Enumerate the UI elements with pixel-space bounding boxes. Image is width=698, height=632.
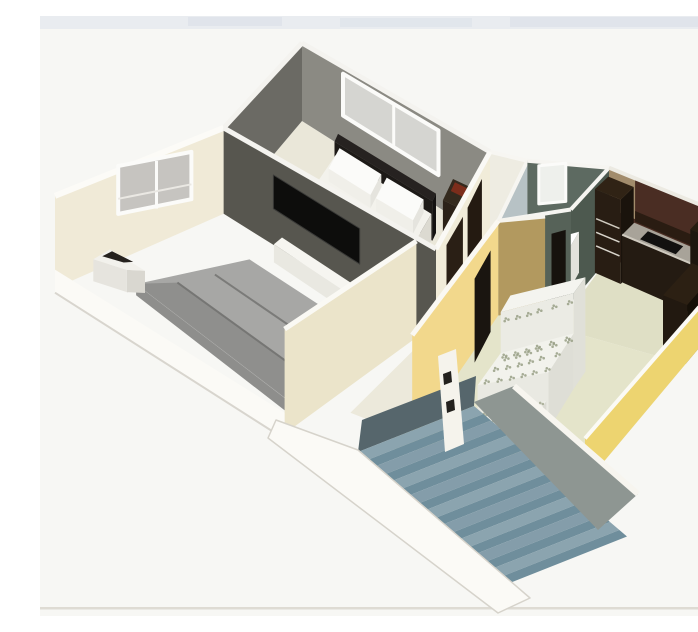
pattern-dot (505, 368, 508, 371)
pattern-dot (532, 360, 535, 363)
small-object-se (127, 270, 145, 293)
pattern-dot (544, 370, 547, 373)
sofa-back-se (574, 277, 586, 389)
pattern-dot (571, 340, 574, 343)
pattern-dot (527, 312, 530, 315)
pattern-dot (553, 342, 556, 345)
pattern-dot (519, 316, 522, 319)
pattern-dot (539, 358, 542, 361)
pattern-dot (493, 369, 496, 372)
pattern-dot (542, 403, 545, 406)
pattern-dot (500, 379, 503, 382)
pattern-dot (538, 346, 541, 349)
pattern-dot (528, 362, 531, 365)
pattern-dot (524, 351, 527, 354)
floor-plan-scene (40, 16, 698, 616)
pattern-dot (487, 380, 490, 383)
pattern-dot (555, 355, 558, 358)
pattern-dot (537, 308, 540, 311)
pattern-dot (503, 359, 506, 362)
pattern-dot (551, 307, 554, 310)
pattern-dot (542, 357, 545, 360)
pattern-dot (552, 304, 555, 307)
pattern-dot (524, 374, 527, 377)
scan-top-blob-3 (510, 17, 698, 27)
pattern-dot (566, 337, 569, 340)
pattern-dot (546, 367, 549, 370)
bathroom-window (539, 163, 566, 204)
pattern-dot (525, 348, 528, 351)
pattern-dot (507, 357, 510, 360)
pattern-dot (568, 300, 571, 303)
pattern-dot (530, 313, 533, 316)
pattern-dot (540, 348, 543, 351)
pattern-dot (503, 320, 506, 323)
pattern-dot (502, 354, 505, 357)
pattern-dot (494, 367, 497, 370)
pattern-dot (498, 378, 501, 381)
bed-headboard-se (432, 194, 436, 241)
pattern-dot (532, 373, 535, 376)
pattern-dot (522, 373, 525, 376)
pattern-dot (567, 341, 570, 344)
pattern-dot (535, 371, 538, 374)
scan-top-blob-1 (188, 17, 282, 26)
pattern-dot (507, 318, 510, 321)
pattern-dot (568, 338, 571, 341)
pattern-dot (535, 347, 538, 350)
pattern-dot (520, 363, 523, 366)
pattern-dot (536, 350, 539, 353)
scan-top-blob-2 (340, 18, 472, 27)
pattern-dot (549, 343, 552, 346)
pattern-dot (485, 379, 488, 382)
pattern-dot (551, 345, 554, 348)
pattern-dot (515, 356, 518, 359)
pattern-dot (514, 351, 517, 354)
pattern-dot (509, 366, 512, 369)
pattern-dot (515, 318, 518, 321)
pattern-dot (530, 352, 533, 355)
pattern-dot (536, 311, 539, 314)
pattern-dot (519, 355, 522, 358)
pattern-dot (516, 315, 519, 318)
pattern-dot (517, 365, 520, 368)
pattern-dot (505, 317, 508, 320)
pattern-dot (526, 353, 529, 356)
pattern-dot (512, 377, 515, 380)
pattern-dot (564, 339, 567, 342)
pattern-dot (505, 355, 508, 358)
pattern-dot (484, 382, 487, 385)
pattern-dot (520, 376, 523, 379)
pattern-dot (496, 380, 499, 383)
pattern-dot (536, 345, 539, 348)
pattern-dot (533, 370, 536, 373)
pattern-dot (558, 353, 561, 356)
pattern-dot (529, 359, 532, 362)
pattern-dot (501, 356, 504, 359)
pattern-dot (518, 362, 521, 365)
pattern-dot (556, 352, 559, 355)
pattern-dot (497, 368, 500, 371)
pattern-dot (555, 306, 558, 309)
pattern-dot (517, 352, 520, 355)
pattern-dot (571, 301, 574, 304)
floor-plan-3d-render (40, 16, 698, 616)
scan-bottom-line (40, 607, 698, 610)
pattern-dot (539, 402, 542, 405)
pattern-dot (567, 303, 570, 306)
pattern-dot (513, 354, 516, 357)
pattern-dot (509, 378, 512, 381)
pattern-dot (540, 356, 543, 359)
pattern-dot (510, 376, 513, 379)
pattern-dot (540, 309, 543, 312)
pattern-dot (555, 344, 558, 347)
pattern-dot (506, 365, 509, 368)
pattern-dot (550, 341, 553, 344)
pattern-dot (548, 368, 551, 371)
pattern-dot (526, 315, 529, 318)
pattern-dot (528, 349, 531, 352)
